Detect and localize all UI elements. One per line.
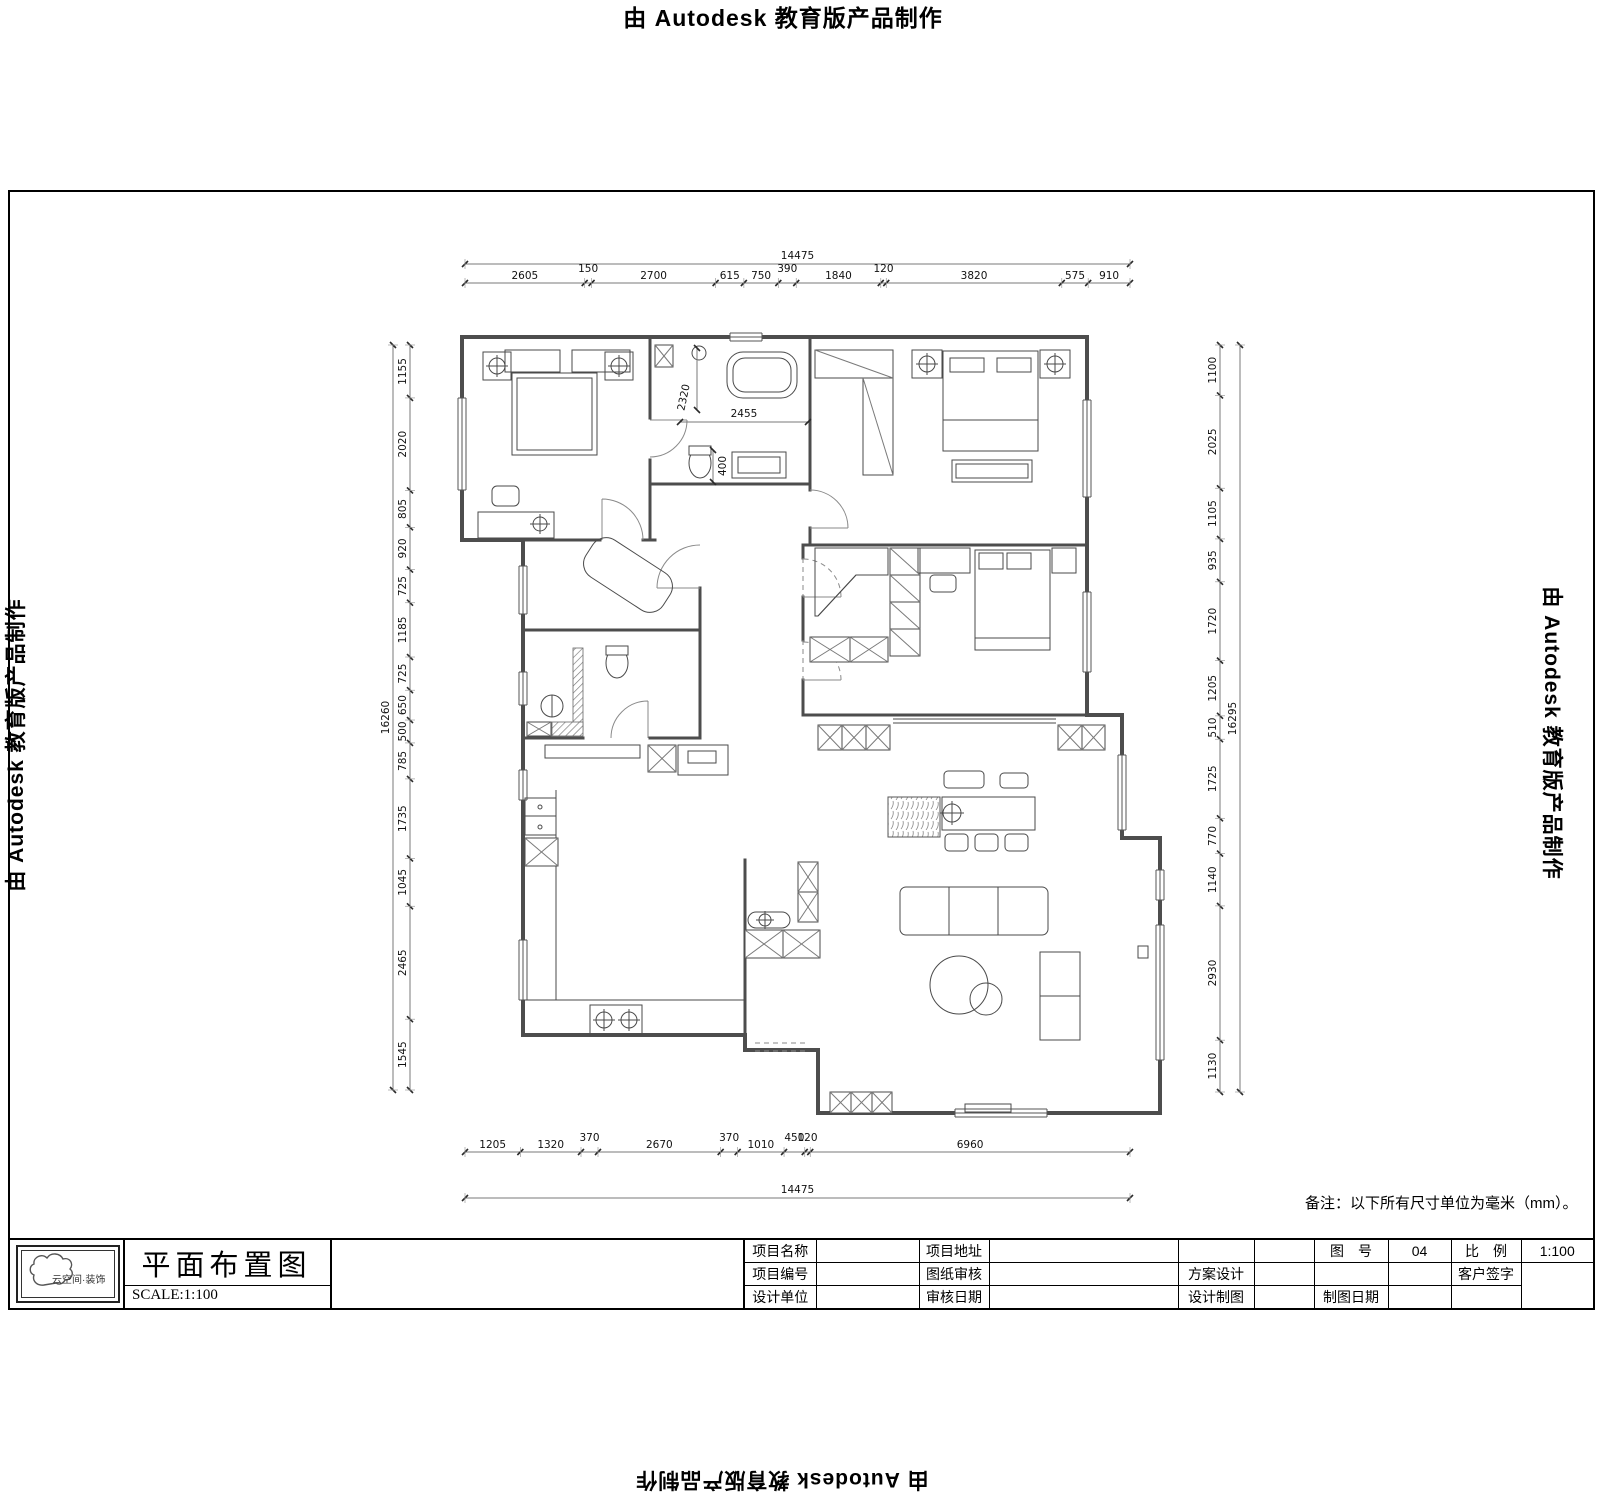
- label-design-unit: 设计单位: [744, 1285, 816, 1309]
- study-desk: [577, 531, 678, 618]
- value-review-date: [989, 1285, 1178, 1309]
- svg-text:370: 370: [719, 1132, 739, 1144]
- label-scheme-design: 方案设计: [1178, 1262, 1254, 1285]
- chair-1: [492, 486, 519, 506]
- svg-text:1045: 1045: [397, 869, 409, 896]
- svg-text:2020: 2020: [397, 431, 409, 458]
- bathtub: [727, 352, 797, 398]
- dimension-chain-left: 1155202080592072511857256505007851735104…: [380, 342, 415, 1093]
- svg-text:725: 725: [397, 576, 409, 596]
- bed-1: [512, 373, 597, 455]
- svg-text:770: 770: [1207, 826, 1219, 846]
- svg-text:370: 370: [579, 1132, 599, 1144]
- company-logo: 云空间·装饰: [16, 1245, 120, 1303]
- dresser-1: [505, 350, 560, 372]
- svg-text:2930: 2930: [1207, 960, 1219, 987]
- inner-dim-2455: 2455: [731, 408, 758, 420]
- logo-frame: 云空间·装饰: [21, 1250, 115, 1298]
- svg-text:390: 390: [777, 263, 797, 275]
- dimension-chain-right: 1100202511059351720120551017257701140293…: [1207, 342, 1245, 1095]
- svg-text:1545: 1545: [397, 1041, 409, 1068]
- svg-text:1100: 1100: [1207, 357, 1219, 384]
- label-project-address: 项目地址: [919, 1239, 989, 1262]
- titleblock-divider-2: [330, 1238, 332, 1308]
- svg-text:16295: 16295: [1227, 702, 1239, 735]
- svg-text:910: 910: [1099, 270, 1119, 282]
- vanity-1: [732, 452, 786, 478]
- value-project-no: [816, 1262, 919, 1285]
- scale-label: SCALE:1:100: [132, 1287, 218, 1304]
- units-note: 备注：以下所有尺寸单位为毫米（mm）。: [1305, 1192, 1578, 1213]
- svg-text:725: 725: [397, 664, 409, 684]
- floor-drain: [692, 346, 706, 360]
- svg-text:805: 805: [397, 499, 409, 519]
- value-scale: 1:100: [1521, 1239, 1594, 1262]
- label-design-drafting: 设计制图: [1178, 1285, 1254, 1309]
- svg-text:500: 500: [397, 721, 409, 741]
- svg-text:1140: 1140: [1207, 866, 1219, 893]
- label-scale: 比 例: [1451, 1239, 1521, 1262]
- label-project-no: 项目编号: [744, 1262, 816, 1285]
- corner-desk: [815, 548, 888, 616]
- value-project-address: [989, 1239, 1178, 1262]
- bed-master: [943, 351, 1038, 451]
- svg-text:120: 120: [797, 1132, 817, 1144]
- svg-text:1205: 1205: [479, 1139, 506, 1151]
- svg-text:1010: 1010: [747, 1139, 774, 1151]
- title-block-table: 项目名称 项目地址 图 号 04 比 例 1:100 项目编号 图纸审核 方案设…: [743, 1238, 1595, 1310]
- svg-text:1205: 1205: [1207, 675, 1219, 702]
- svg-text:615: 615: [720, 270, 740, 282]
- svg-text:2700: 2700: [640, 270, 667, 282]
- inner-dim-2320: 2320: [675, 383, 692, 412]
- svg-text:575: 575: [1065, 270, 1085, 282]
- inner-dim-400: 400: [717, 456, 729, 476]
- svg-text:1155: 1155: [397, 358, 409, 385]
- svg-text:2670: 2670: [646, 1139, 673, 1151]
- svg-text:120: 120: [874, 263, 894, 275]
- svg-text:2605: 2605: [511, 270, 538, 282]
- watermark-bottom: 由 Autodesk 教育版产品制作: [635, 1466, 928, 1496]
- bed-bench: [952, 460, 1032, 482]
- label-client-signature: 客户签字: [1451, 1262, 1521, 1285]
- svg-text:16260: 16260: [380, 701, 392, 734]
- titleblock-subline: [123, 1285, 330, 1286]
- value-drawing-no: 04: [1388, 1239, 1451, 1262]
- value-drawing-review: [989, 1262, 1178, 1285]
- svg-text:785: 785: [397, 751, 409, 771]
- laundry-cabinet: [678, 745, 728, 775]
- svg-text:650: 650: [397, 695, 409, 715]
- logo-text: 云空间·装饰: [52, 1273, 105, 1286]
- value-client-signature: [1521, 1262, 1594, 1309]
- label-review-date: 审核日期: [919, 1285, 989, 1309]
- dresser-2: [572, 350, 630, 372]
- floor-plan: 1447526051502700615750390184012038205759…: [350, 230, 1255, 1220]
- svg-text:920: 920: [397, 538, 409, 558]
- value-drafting-date: [1388, 1285, 1451, 1309]
- svg-text:1735: 1735: [397, 805, 409, 832]
- svg-text:1185: 1185: [397, 617, 409, 644]
- watermark-top: 由 Autodesk 教育版产品制作: [623, 0, 943, 33]
- svg-text:150: 150: [578, 263, 598, 275]
- label-drawing-no: 图 号: [1314, 1239, 1388, 1262]
- svg-text:1840: 1840: [825, 270, 852, 282]
- svg-text:6960: 6960: [957, 1139, 984, 1151]
- svg-text:1725: 1725: [1207, 765, 1219, 792]
- svg-text:3820: 3820: [961, 270, 988, 282]
- svg-text:14475: 14475: [781, 1184, 814, 1196]
- value-design-unit: [816, 1285, 919, 1309]
- dimension-chain-bottom: 1205132037026703701010450120696014475: [462, 1132, 1133, 1203]
- cad-floorplan-sheet: { "watermark": { "text": "由 Autodesk 教育版…: [0, 0, 1600, 1500]
- value-project-name: [816, 1239, 919, 1262]
- svg-text:14475: 14475: [781, 250, 814, 262]
- svg-text:1720: 1720: [1207, 608, 1219, 635]
- svg-text:750: 750: [751, 270, 771, 282]
- bed-2: [975, 550, 1050, 650]
- svg-text:1130: 1130: [1207, 1053, 1219, 1080]
- desk-1: [478, 512, 554, 538]
- sheet-title: 平面布置图: [123, 1242, 330, 1284]
- sofa: [900, 887, 1048, 935]
- cloud-logo-icon: 云空间·装饰: [22, 1252, 114, 1296]
- marble-rug: [888, 797, 940, 837]
- furniture: [478, 345, 1148, 1113]
- svg-text:935: 935: [1207, 550, 1219, 570]
- svg-text:1320: 1320: [537, 1139, 564, 1151]
- label-project-name: 项目名称: [744, 1239, 816, 1262]
- label-drafting-date: 制图日期: [1314, 1285, 1388, 1309]
- svg-text:2025: 2025: [1207, 428, 1219, 455]
- desk-2: [918, 548, 970, 573]
- svg-text:510: 510: [1207, 718, 1219, 738]
- label-drawing-review: 图纸审核: [919, 1262, 989, 1285]
- dimension-chain-top: 1447526051502700615750390184012038205759…: [462, 250, 1133, 288]
- svg-text:2465: 2465: [397, 949, 409, 976]
- svg-text:1105: 1105: [1207, 500, 1219, 527]
- chair-2: [930, 575, 956, 592]
